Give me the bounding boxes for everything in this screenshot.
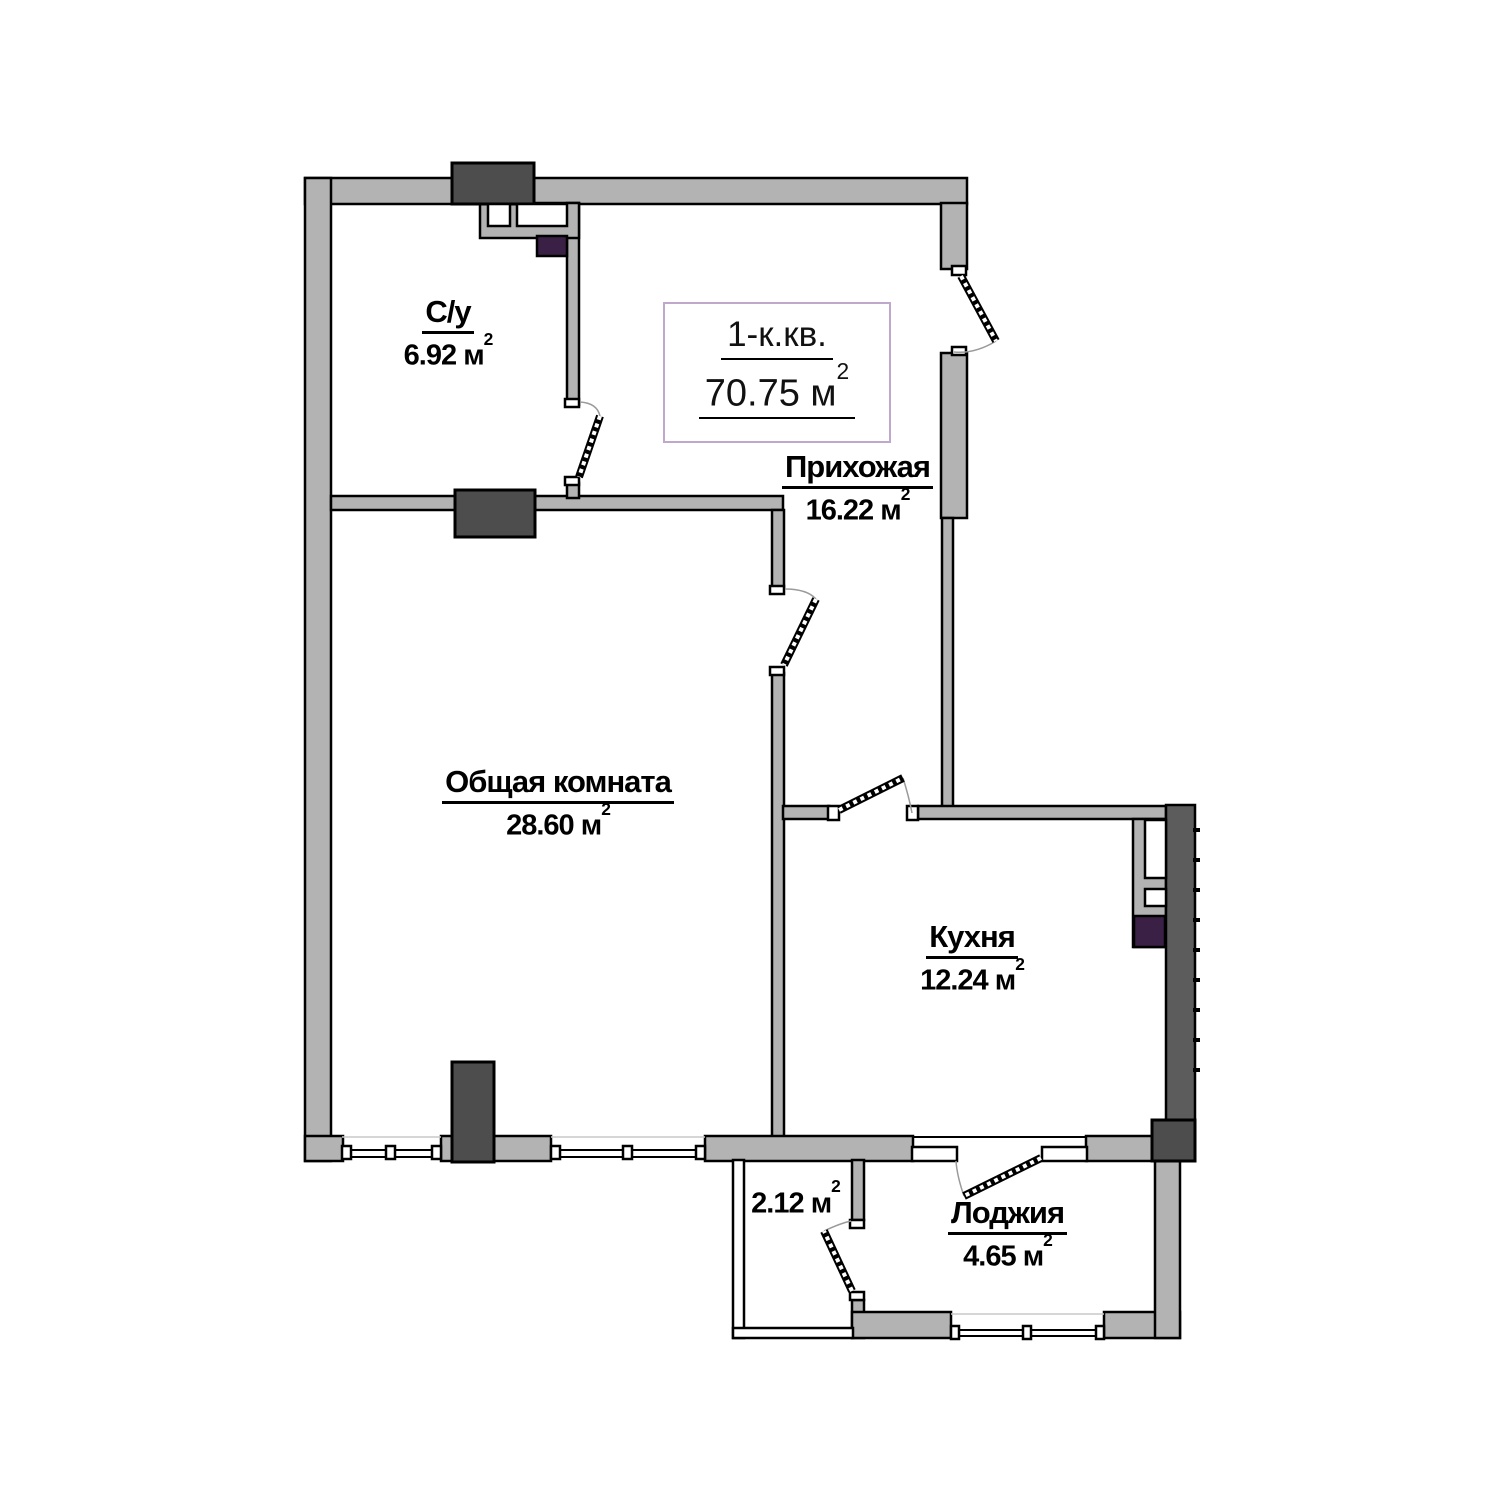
vent-block-top — [452, 163, 534, 204]
column-bottom — [452, 1062, 494, 1162]
window-mullion — [551, 1146, 560, 1159]
room-area: 16.22 м2 — [755, 494, 960, 528]
room-label-kitchen: Кухня 12.24 м2 — [872, 920, 1072, 998]
room-area: 4.65 м2 — [905, 1240, 1110, 1274]
shaft-opening — [1145, 889, 1166, 906]
room-label-living: Общая комната 28.60 м2 — [418, 765, 698, 843]
wall-right-exterior — [1166, 805, 1195, 1121]
railing-bottom — [733, 1328, 853, 1338]
door-jamb — [850, 1220, 864, 1228]
door-jamb — [907, 806, 918, 820]
room-name: Прихожая — [782, 450, 933, 489]
door-jamb — [770, 667, 784, 675]
window-mullion — [696, 1146, 705, 1159]
room-name: С/у — [422, 295, 473, 334]
room-name: Кухня — [926, 920, 1018, 959]
room-area: 2.12 м2 — [733, 1187, 858, 1221]
shaft-block-bathroom — [537, 236, 567, 256]
door-jamb — [952, 266, 966, 275]
wall-left — [305, 178, 331, 1161]
door-arc-bathroom — [580, 402, 600, 416]
door-jamb — [828, 806, 839, 820]
door-jamb — [770, 586, 784, 594]
wall-living-divider — [772, 673, 784, 1137]
door-jamb — [565, 399, 579, 407]
floor-plan-drawing — [0, 0, 1500, 1500]
window-sill-box — [912, 1147, 957, 1161]
wall-tick — [1193, 1008, 1200, 1012]
wall-segment — [305, 1136, 343, 1161]
door-arc-loggia — [956, 1161, 964, 1196]
wall-top — [305, 178, 967, 204]
room-label-loggia: Лоджия 4.65 м2 — [905, 1196, 1110, 1274]
wall-loggia-right — [1155, 1160, 1180, 1338]
door-jamb — [565, 477, 579, 485]
door-leaf-balcony-hatch — [824, 1231, 852, 1291]
wall-bathroom-bottom — [331, 496, 783, 510]
room-area: 6.92 м2 — [348, 339, 548, 373]
pillar-right — [1152, 1120, 1195, 1161]
wall-kitchen-top-left — [783, 806, 829, 819]
shaft-opening — [517, 204, 567, 226]
wall-tick — [1193, 948, 1200, 952]
vent-block-middle — [455, 490, 535, 537]
door-jamb — [850, 1292, 864, 1300]
wall-tick — [1193, 1068, 1200, 1072]
window-mullion — [951, 1326, 959, 1339]
wall-tick — [1193, 828, 1200, 832]
window-mullion — [386, 1146, 395, 1159]
wall-tick — [1193, 1038, 1200, 1042]
wall-hallway-right — [942, 518, 953, 809]
room-label-hallway: Прихожая 16.22 м2 — [755, 450, 960, 528]
floor-plan: 1-к.кв. 70.75 м2 С/у 6.92 м2 Прихожая 16… — [0, 0, 1500, 1500]
window-mullion — [432, 1146, 441, 1159]
room-area: 12.24 м2 — [872, 964, 1072, 998]
room-area: 28.60 м2 — [418, 809, 698, 843]
window-mullion — [1096, 1326, 1104, 1339]
shaft-block-kitchen — [1134, 916, 1165, 947]
shaft-opening — [488, 204, 510, 226]
apartment-type-label: 1-к.кв. — [721, 316, 833, 360]
room-label-balcony: 2.12 м2 — [733, 1182, 858, 1221]
apartment-total-area: 70.75 м2 — [699, 372, 855, 419]
room-label-bathroom: С/у 6.92 м2 — [348, 295, 548, 373]
window-sill-box — [1042, 1147, 1087, 1161]
window-mullion — [1023, 1326, 1031, 1339]
title-box: 1-к.кв. 70.75 м2 — [663, 302, 891, 443]
door-jamb — [952, 347, 966, 355]
wall-segment — [1086, 1136, 1155, 1161]
window-mullion — [342, 1146, 351, 1159]
wall-entry-upper — [941, 203, 967, 269]
window-mullion — [623, 1146, 632, 1159]
wall-kitchen-top-right — [918, 806, 1166, 819]
wall-tick — [1193, 978, 1200, 982]
wall-tick — [1193, 918, 1200, 922]
wall-tick — [1193, 858, 1200, 862]
room-name: Общая комната — [442, 765, 674, 804]
wall-segment — [493, 1136, 551, 1161]
wall-loggia-bottom-left — [852, 1312, 951, 1338]
wall-tick — [1193, 888, 1200, 892]
shaft-opening — [1145, 820, 1166, 878]
door-arc-balcony — [824, 1221, 851, 1231]
wall-segment — [705, 1136, 913, 1161]
door-arc-living — [785, 589, 816, 599]
